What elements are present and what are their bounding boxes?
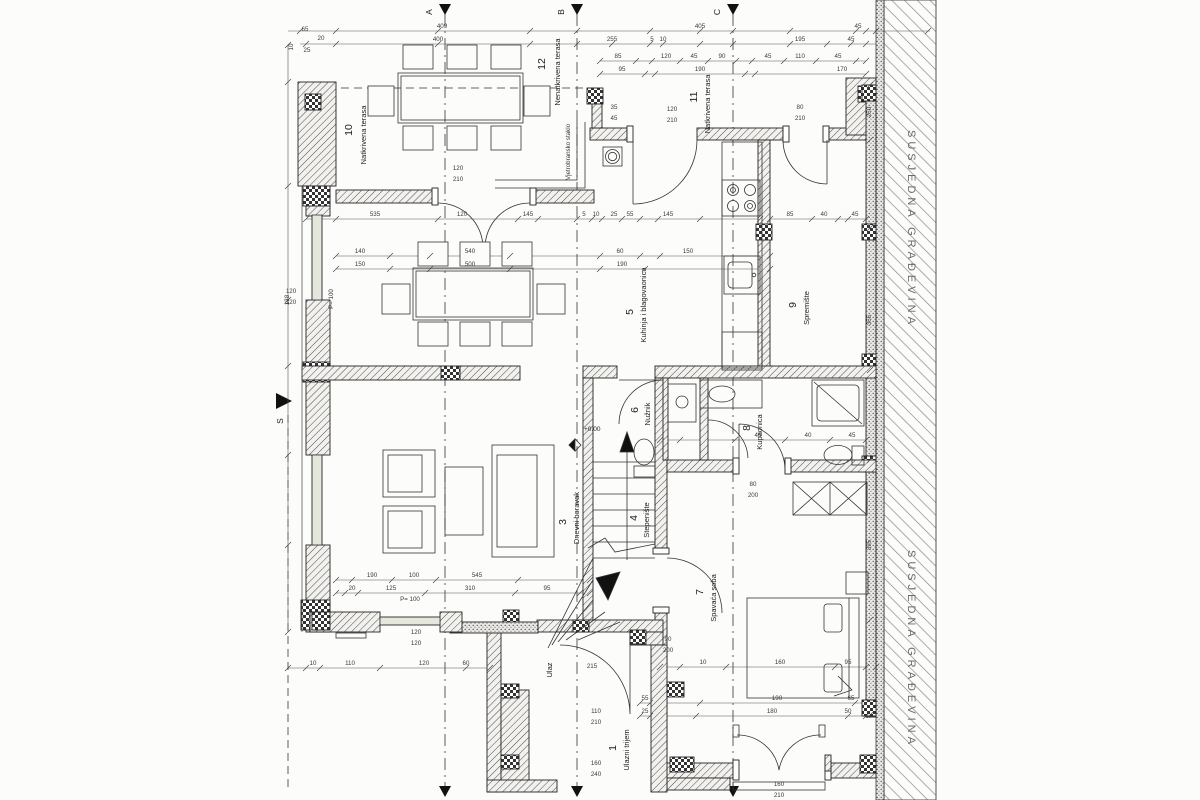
- floor-plan-page: SUSJEDNA GRAĐEVINA SUSJEDNA GRAĐEVINA A …: [0, 0, 1200, 800]
- dimension-text: 90: [719, 53, 726, 60]
- dimension-text: 355: [866, 314, 873, 325]
- dimension-text: 120: [453, 165, 464, 172]
- room-name: Spremište: [802, 291, 811, 325]
- room-name: Natkrivena terasa: [359, 105, 368, 165]
- dimension-text: 45: [765, 53, 772, 60]
- dimension-text: 535: [370, 211, 381, 218]
- dimension-text: 160: [591, 760, 602, 767]
- floor-plan-svg: SUSJEDNA GRAĐEVINA SUSJEDNA GRAĐEVINA A …: [0, 0, 1200, 800]
- dimension-text: 110: [591, 708, 601, 715]
- chair: [502, 242, 532, 266]
- dimension-text: 95: [544, 585, 551, 592]
- chair: [418, 322, 448, 346]
- dimension-text: 210: [795, 115, 806, 122]
- dimension-text: 55: [627, 211, 634, 218]
- dining-table: [413, 268, 533, 320]
- chair: [447, 45, 477, 69]
- dimension-text: 45: [611, 115, 618, 122]
- room-name: Natkrivena terasa: [703, 74, 712, 134]
- dimension-text: 45: [755, 432, 762, 439]
- dimension-text: 120: [661, 53, 672, 60]
- dimension-text: 45: [691, 53, 698, 60]
- dimension-text: 85: [787, 211, 794, 218]
- chair: [368, 86, 394, 116]
- armchair: [383, 450, 435, 497]
- dimension-text: 25: [304, 47, 311, 54]
- section-marker-icon: [727, 4, 739, 15]
- dimension-text: 160: [775, 659, 786, 666]
- neighbor-building-hatch: SUSJEDNA GRAĐEVINA SUSJEDNA GRAĐEVINA: [876, 0, 936, 800]
- entry-door-arc: [560, 645, 630, 714]
- dimension-text: 210: [667, 117, 678, 124]
- pillow: [824, 604, 842, 632]
- dimension-text: 150: [683, 248, 694, 255]
- walls: [298, 78, 876, 792]
- dimension-text: 120: [286, 288, 297, 295]
- dimension-text: 95: [845, 659, 852, 666]
- room-number: 9: [787, 302, 799, 308]
- armchair: [383, 506, 435, 553]
- coffee-table: [445, 467, 483, 535]
- dimension-text: P= 100: [400, 596, 420, 603]
- dimension-text: 145: [523, 211, 534, 218]
- dimension-text: 55: [642, 695, 649, 702]
- dimension-text: 138: [284, 294, 291, 305]
- pillow: [824, 664, 842, 692]
- washbasin-cabinet: [668, 384, 696, 422]
- dimension-text: 210: [774, 792, 785, 799]
- dimension-text: 200: [748, 492, 759, 499]
- dimension-text: 210: [591, 719, 602, 726]
- elevation-label: +0.00: [584, 426, 601, 433]
- room-name: Stepenište: [642, 502, 651, 537]
- chair: [382, 284, 410, 314]
- room-number: 6: [629, 407, 641, 413]
- dimension-text: 50: [845, 708, 852, 715]
- dimension-text: P= 100: [328, 289, 335, 309]
- dimension-text: 20: [349, 585, 356, 592]
- chair: [418, 242, 448, 266]
- dimension-text: 395: [866, 539, 873, 550]
- chair: [537, 284, 565, 314]
- dimension-text: 60: [463, 660, 470, 667]
- dimension-text: 25: [642, 708, 649, 715]
- dimension-text: 180: [767, 708, 778, 715]
- dimension-text: 190: [772, 695, 783, 702]
- dimension-text: 120: [411, 629, 422, 636]
- dimension-text: 10: [660, 36, 667, 43]
- room-name: Spavaća soba: [709, 573, 718, 621]
- section-marker-icon: [439, 4, 451, 15]
- stair-arrow-head-icon: [620, 432, 634, 452]
- dimension-text: 45: [849, 432, 856, 439]
- dimension-text: 45: [852, 211, 859, 218]
- dimension-text: 145: [663, 211, 674, 218]
- room-name: Kuhinja i blagovaonica: [639, 267, 648, 343]
- dimension-text: 250: [866, 106, 873, 117]
- dimension-text: 60: [617, 248, 624, 255]
- dimension-text: 120: [667, 106, 678, 113]
- dimension-text: 500: [465, 261, 476, 268]
- dimension-text: 10: [700, 659, 707, 666]
- dimension-text: 545: [472, 572, 483, 579]
- dimension-text: 190: [695, 66, 706, 73]
- double-door-arc: [438, 203, 530, 248]
- dimension-text: 310: [465, 585, 476, 592]
- dimension-text: 255: [607, 36, 618, 43]
- dimension-text: 190: [617, 261, 628, 268]
- dimension-text: 195: [795, 36, 806, 43]
- dimension-text: 45: [848, 36, 855, 43]
- stove: [722, 180, 760, 216]
- dimension-text: 85: [615, 53, 622, 60]
- room-number: 10: [343, 124, 355, 136]
- section-marker-icon: [571, 4, 583, 15]
- north-arrow-icon: [276, 393, 292, 409]
- chair: [403, 45, 433, 69]
- dimension-text: 90: [665, 636, 672, 643]
- dimension-text: 40: [821, 211, 828, 218]
- dimension-text: 215: [587, 663, 598, 670]
- dimension-text: 110: [795, 53, 805, 60]
- dimension-text: 120: [411, 640, 422, 647]
- dining-table: [398, 73, 523, 123]
- door-arc: [633, 140, 697, 204]
- section-letter-a: A: [424, 9, 434, 15]
- room-number: 8: [741, 425, 753, 431]
- dimension-text: 210: [453, 176, 464, 183]
- room-name: Nužnik: [643, 402, 652, 425]
- entrance-label: Ulaz: [545, 662, 554, 677]
- dimension-text: 20: [318, 35, 325, 42]
- dimension-text: 40: [805, 432, 812, 439]
- room-name: Dnevni boravak: [572, 492, 581, 544]
- section-letter-c: C: [712, 9, 722, 15]
- stair-arrow-down-icon: [596, 572, 620, 600]
- dimension-text: 80: [750, 481, 757, 488]
- dimension-text: 170: [837, 66, 848, 73]
- chair: [460, 322, 490, 346]
- dimension-text: 190: [367, 572, 378, 579]
- dimension-text: 45: [835, 53, 842, 60]
- door-arc: [783, 140, 827, 184]
- north-label: S: [275, 418, 285, 424]
- dimension-text: Vjetrobransko staklo: [565, 123, 572, 180]
- section-marker-icon: [439, 786, 451, 797]
- dimension-text: 35: [611, 104, 618, 111]
- nightstand: [846, 572, 868, 594]
- dimension-text: 540: [465, 248, 476, 255]
- dimension-text: 150: [355, 261, 366, 268]
- section-marker-icon: [571, 786, 583, 797]
- dimension-text: 409: [437, 23, 448, 30]
- dimension-text: 200: [663, 647, 674, 654]
- dimension-text: 10: [310, 660, 317, 667]
- stair-break-line: [588, 538, 655, 552]
- chair: [491, 126, 521, 150]
- french-door-arcs: [737, 735, 821, 770]
- dimension-text: 110: [345, 660, 355, 667]
- room-number: 7: [694, 589, 706, 595]
- dimension-text: 120: [457, 211, 468, 218]
- room-number: 12: [536, 58, 548, 70]
- dimension-text: 65: [848, 695, 855, 702]
- room-number: 4: [628, 515, 640, 521]
- dimension-text: 95: [619, 66, 626, 73]
- room-number: 3: [557, 519, 569, 525]
- room-number: 11: [688, 91, 700, 102]
- dimension-text: 100: [409, 572, 420, 579]
- dimension-text: 400: [433, 36, 444, 43]
- chair: [491, 45, 521, 69]
- chair: [447, 126, 477, 150]
- dimension-text: 65: [302, 26, 309, 33]
- dimension-text: 405: [695, 23, 706, 30]
- washbasin: [709, 386, 735, 402]
- dimension-text: 160: [774, 781, 785, 788]
- neighbor-label: SUSJEDNA GRAĐEVINA: [905, 130, 917, 328]
- chair: [403, 126, 433, 150]
- room-name: Ulazni trijem: [622, 729, 631, 770]
- windows-doors: [312, 122, 827, 790]
- room-number: 1: [607, 745, 619, 751]
- dimension-text: 5: [582, 211, 586, 218]
- toilet: [634, 439, 654, 465]
- neighbor-label: SUSJEDNA GRAĐEVINA: [905, 550, 917, 748]
- chair: [524, 86, 550, 116]
- dimension-text: 125: [386, 585, 397, 592]
- dimension-text: 25: [611, 211, 618, 218]
- dimension-text: 80: [797, 104, 804, 111]
- room-name: Nenatkrivena terasa: [553, 38, 562, 106]
- chair: [502, 322, 532, 346]
- section-letter-b: B: [556, 9, 566, 15]
- dimension-text: 140: [355, 248, 366, 255]
- dimension-text: 240: [591, 771, 602, 778]
- sofa: [492, 445, 554, 557]
- dimension-text: 120: [419, 660, 430, 667]
- room-number: 5: [624, 309, 636, 315]
